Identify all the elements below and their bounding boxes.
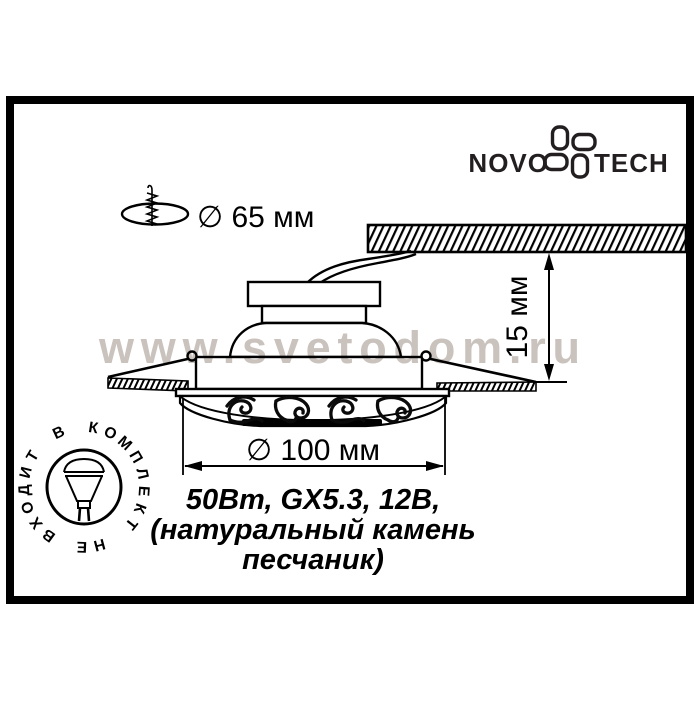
- brand-name-left: NOVO: [468, 148, 549, 178]
- flange-section-right: [437, 382, 536, 391]
- terminal-block: [248, 282, 380, 306]
- brand-name-right: TECH: [594, 148, 669, 178]
- stamp-char: Е: [135, 485, 153, 497]
- spec-line-2: (натуральный камень: [150, 514, 476, 546]
- diameter-dimension-label: ∅ 100 мм: [246, 434, 380, 467]
- watermark: www.svetodom.ru: [98, 322, 581, 373]
- cutout-dimension-label: ∅ 65 мм: [197, 201, 314, 234]
- spec-line-1: 50Вт, GX5.3, 12В,: [186, 484, 440, 516]
- diagram-canvas: NOVO TECH ∅ 65 мм: [0, 0, 700, 700]
- stamp-char: Е: [76, 538, 87, 555]
- spec-line-3: песчаник): [242, 544, 384, 576]
- lamp-holder-neck: [262, 306, 366, 323]
- stamp-char: Д: [16, 484, 34, 496]
- ceiling-section-hatch: [368, 225, 686, 252]
